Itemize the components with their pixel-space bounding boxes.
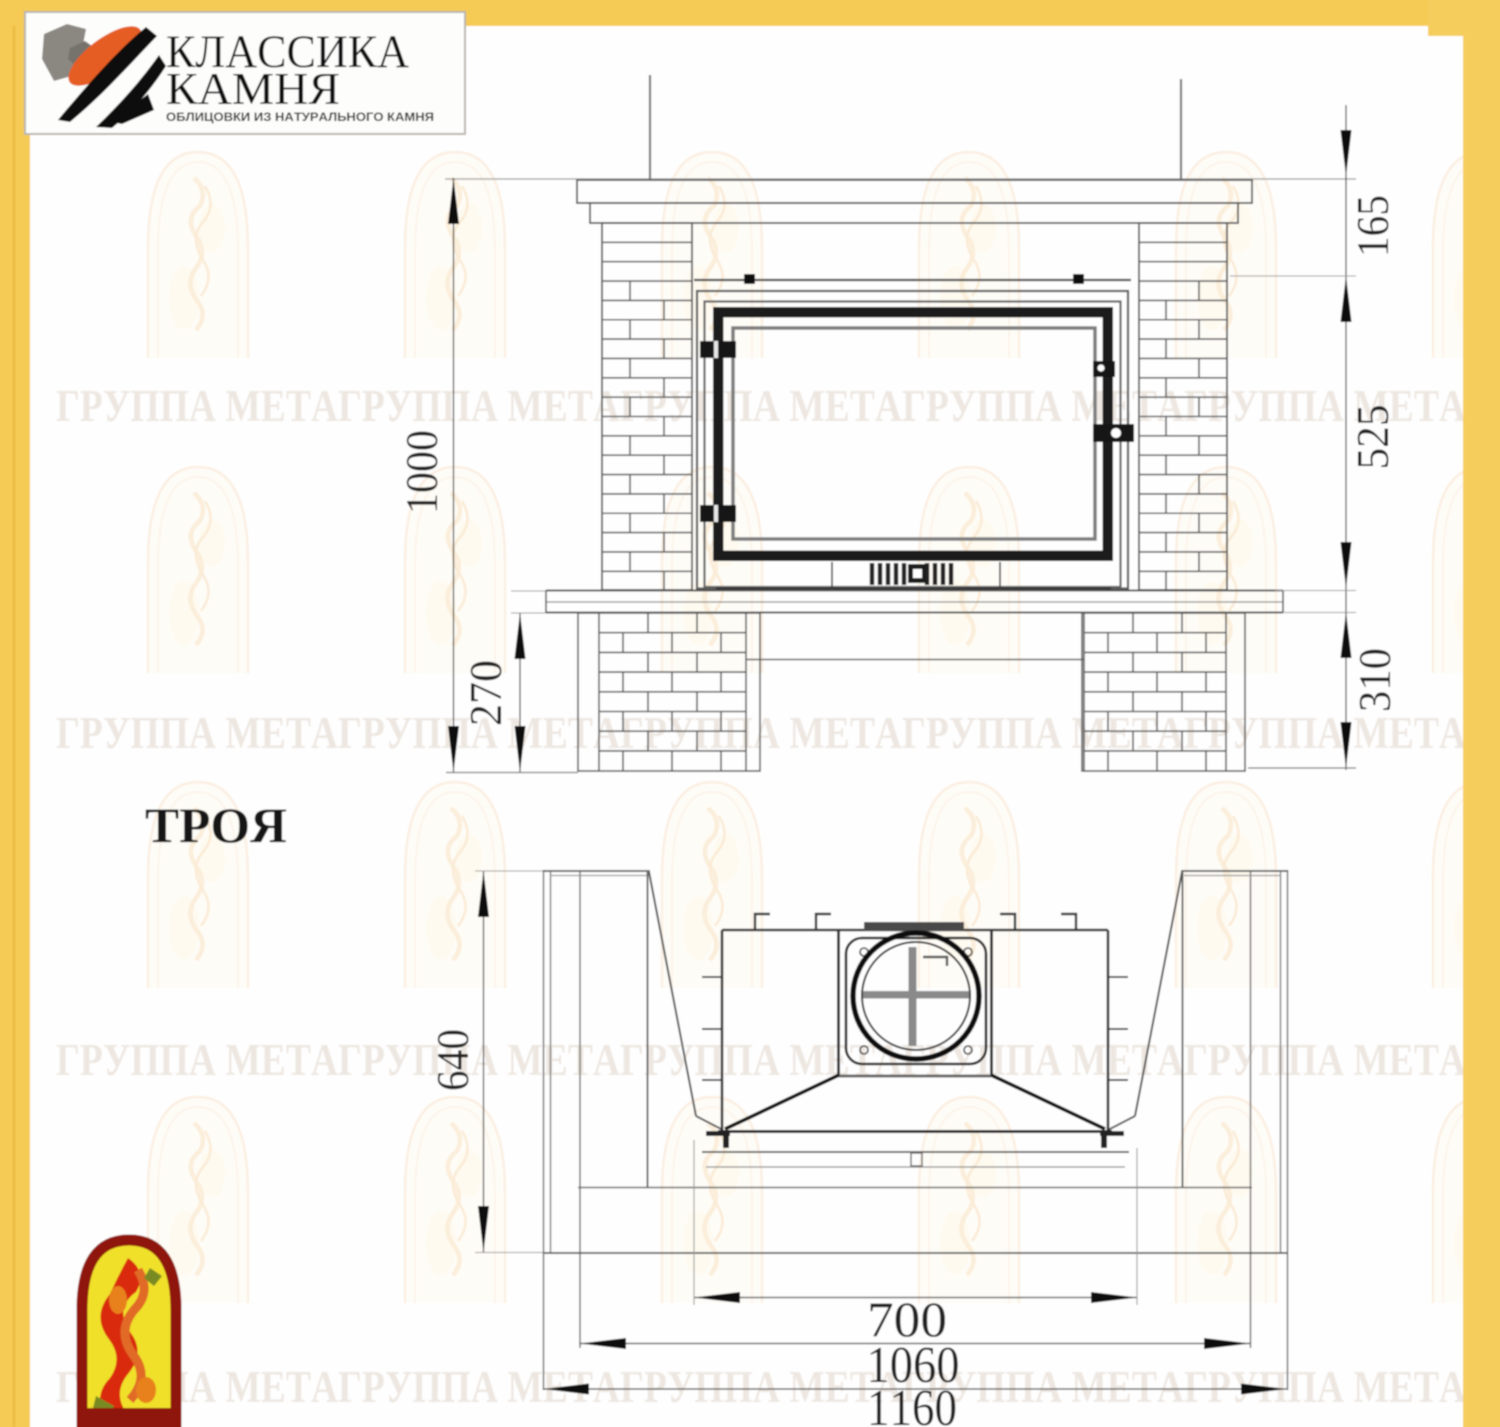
svg-text:ГРУППА МЕТАГРУППА МЕТАГРУППА М: ГРУППА МЕТАГРУППА МЕТАГРУППА МЕТАГРУППА … bbox=[56, 381, 1466, 431]
svg-text:525: 525 bbox=[1347, 405, 1398, 470]
svg-text:1160: 1160 bbox=[867, 1380, 957, 1427]
svg-text:ТРОЯ: ТРОЯ bbox=[145, 797, 287, 853]
svg-text:165: 165 bbox=[1347, 195, 1398, 257]
svg-text:310: 310 bbox=[1349, 648, 1400, 712]
svg-text:ГРУППА МЕТАГРУППА МЕТАГРУППА М: ГРУППА МЕТАГРУППА МЕТАГРУППА МЕТАГРУППА … bbox=[56, 708, 1466, 758]
svg-text:270: 270 bbox=[460, 660, 511, 726]
svg-text:640: 640 bbox=[427, 1029, 478, 1091]
svg-text:КАМНЯ: КАМНЯ bbox=[166, 64, 340, 114]
svg-text:ГРУППА МЕТАГРУППА МЕТАГРУППА М: ГРУППА МЕТАГРУППА МЕТАГРУППА МЕТАГРУППА … bbox=[56, 1035, 1466, 1085]
svg-text:1000: 1000 bbox=[396, 430, 447, 514]
svg-text:ОБЛИЦОВКИ ИЗ НАТУРАЛЬНОГО КАМН: ОБЛИЦОВКИ ИЗ НАТУРАЛЬНОГО КАМНЯ bbox=[166, 112, 434, 124]
